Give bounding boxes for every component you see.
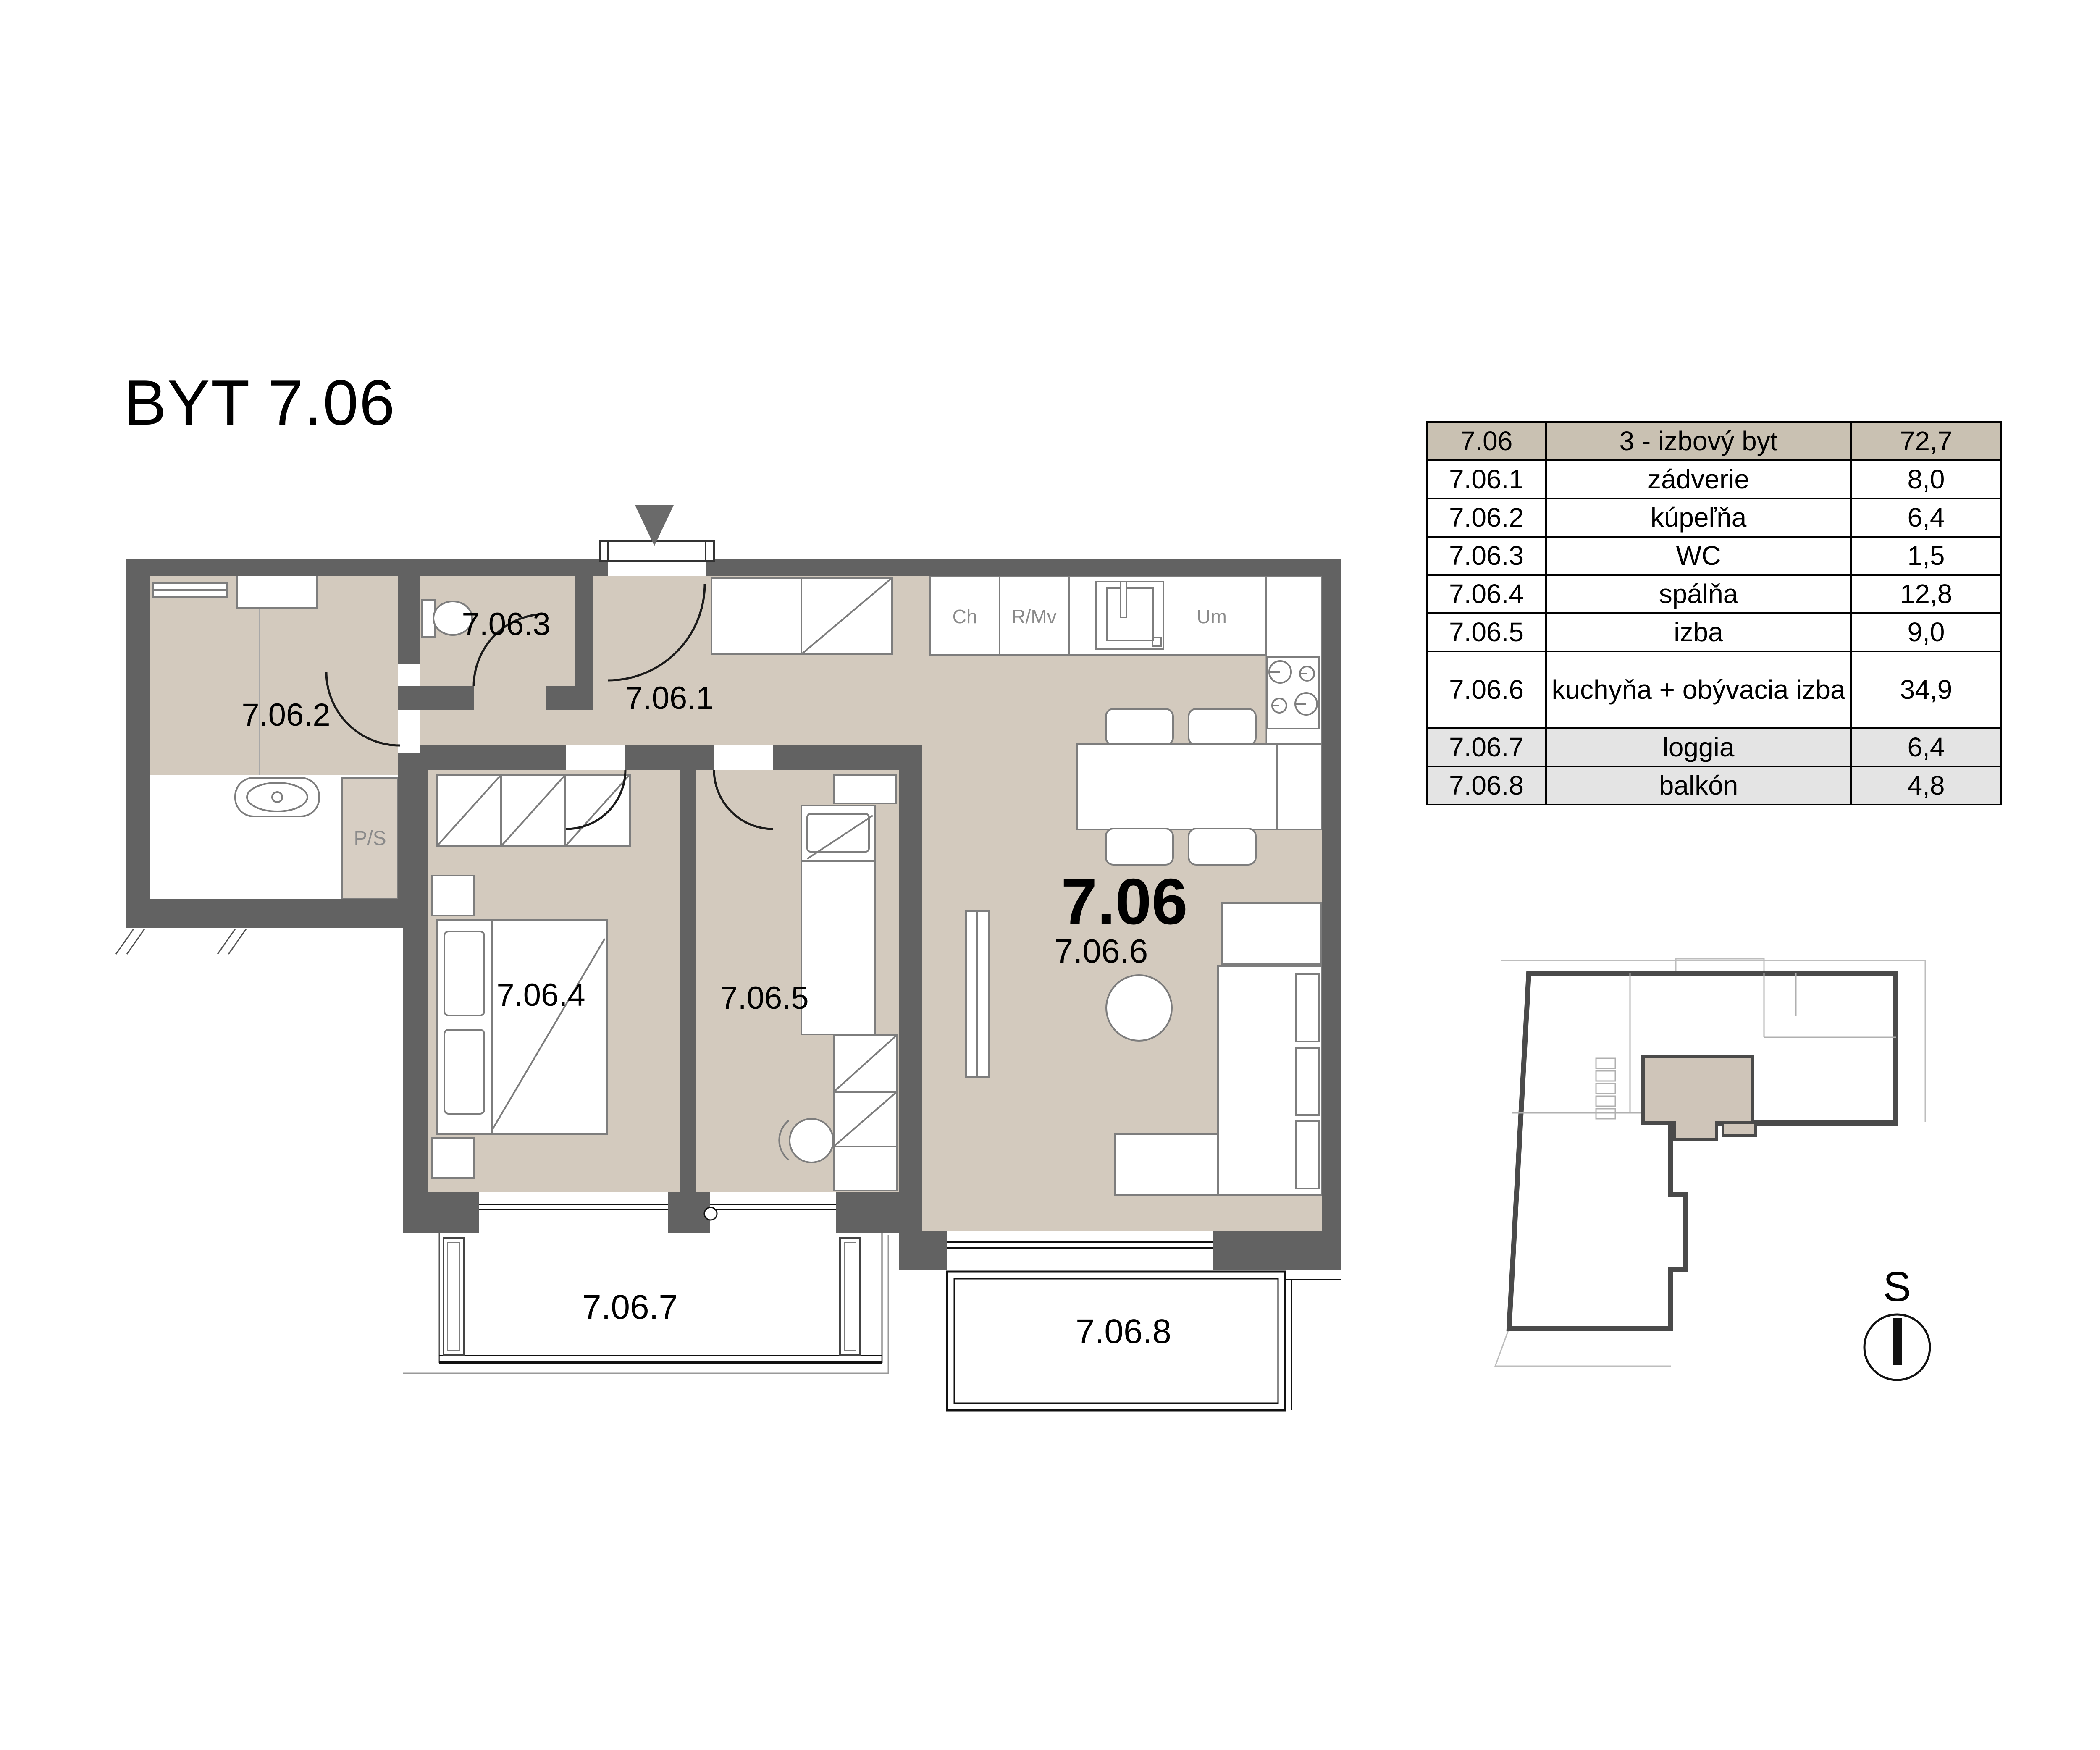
label-cabinet1: Ch — [953, 606, 977, 627]
building-outline — [1509, 973, 1896, 1328]
dining-table — [1077, 744, 1322, 829]
loggia-frame — [840, 1238, 860, 1355]
label-cabinet2: R/Mv — [1011, 606, 1056, 627]
chair-icon — [1106, 829, 1173, 865]
label-bedroom: 7.06.4 — [496, 977, 585, 1013]
terrain-ticks — [116, 929, 246, 954]
wall — [668, 1192, 710, 1233]
desk-chair-icon — [790, 1119, 833, 1162]
nightstand — [432, 1138, 474, 1178]
compass-needle-icon — [1893, 1318, 1902, 1365]
window — [947, 1233, 1213, 1270]
wall — [126, 899, 420, 928]
chair-icon — [1106, 709, 1173, 745]
entrance-marker-icon — [635, 505, 674, 546]
wardrobe — [834, 1035, 897, 1147]
label-room5: 7.06.5 — [720, 980, 808, 1016]
wall — [899, 745, 922, 1231]
wall — [403, 745, 566, 770]
wall — [126, 559, 420, 576]
pillow-icon — [444, 1030, 484, 1114]
compass: S — [1864, 1263, 1930, 1380]
floorplan-drawing: 7.06.1 7.06.2 7.06.3 7.06.4 7.06.5 7.06 … — [0, 0, 2100, 1750]
pillow-icon — [444, 931, 484, 1015]
cabinet — [834, 1147, 897, 1191]
label-living: 7.06.6 — [1055, 932, 1148, 970]
wall — [398, 559, 420, 672]
sofa-ottoman — [1222, 903, 1321, 964]
tick — [228, 929, 246, 954]
sofa-chaise — [1115, 1134, 1218, 1195]
sofa-cushion — [1296, 1048, 1319, 1115]
chair-icon — [1189, 709, 1256, 745]
chair-icon — [1189, 829, 1256, 865]
door-jamb — [398, 744, 420, 753]
label-loggia: 7.06.7 — [582, 1288, 678, 1326]
door-jamb — [398, 664, 420, 674]
wall — [680, 770, 696, 1192]
label-bathroom: 7.06.2 — [241, 697, 330, 733]
label-hall: 7.06.1 — [625, 680, 714, 716]
sofa-cushion — [1296, 974, 1319, 1042]
floorplan-sheet: BYT 7.06 7.06 3 - izbový byt 72,7 7.06.1… — [0, 0, 2100, 1750]
minimap — [1495, 959, 1925, 1366]
wall — [126, 559, 150, 928]
label-washer: P/S — [354, 827, 386, 850]
plot-line — [1495, 1328, 1671, 1366]
window — [710, 1194, 836, 1233]
wall — [403, 770, 428, 1233]
north-label: S — [1883, 1263, 1911, 1310]
wall — [706, 559, 1341, 576]
wall — [836, 1192, 922, 1233]
wall — [546, 686, 593, 710]
entrance-door-leaf — [600, 541, 714, 561]
wall — [403, 1192, 479, 1233]
label-apartment: 7.06 — [1061, 865, 1188, 938]
label-wc: 7.06.3 — [462, 606, 550, 642]
loggia-frame — [444, 1238, 464, 1355]
wall — [1213, 1231, 1341, 1270]
wall — [899, 1231, 947, 1270]
drainpipe-icon — [704, 1207, 717, 1220]
nightstand — [432, 876, 474, 916]
shelf — [834, 775, 896, 803]
tick — [127, 929, 144, 954]
wall — [398, 686, 474, 710]
pillow-icon — [807, 814, 869, 852]
window — [479, 1194, 668, 1233]
wall — [1322, 559, 1341, 1231]
tick — [218, 929, 235, 954]
label-balcony: 7.06.8 — [1076, 1312, 1171, 1351]
bedroom-furniture — [432, 775, 630, 1178]
tick — [116, 929, 134, 954]
label-sink: Um — [1197, 606, 1227, 627]
sink-faucet-icon — [1121, 582, 1126, 617]
wall — [625, 745, 714, 770]
minimap-apartment-tab — [1723, 1123, 1756, 1136]
sofa-cushion — [1296, 1121, 1319, 1189]
coffee-table-icon — [1106, 975, 1172, 1041]
